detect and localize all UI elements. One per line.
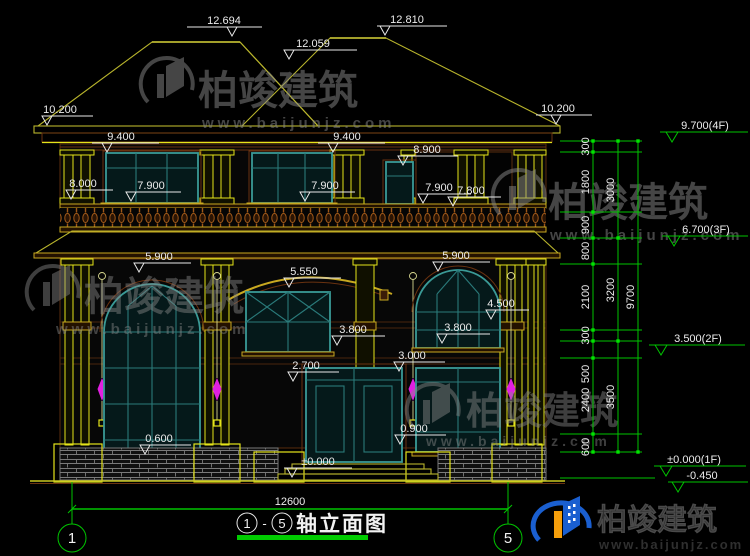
svg-text:±0.000(1F): ±0.000(1F) xyxy=(667,454,721,466)
svg-text:0.900: 0.900 xyxy=(400,423,428,435)
watermark-url: www.baijunjz.com xyxy=(55,321,249,338)
brand-logo: 柏竣建筑 www.baijunjz.com xyxy=(533,496,743,552)
watermark-brand: 柏竣建筑 xyxy=(548,181,708,225)
watermark-top: 柏竣建筑 www.baijunjz.com xyxy=(141,57,396,132)
svg-text:300: 300 xyxy=(580,326,592,344)
svg-text:5.900: 5.900 xyxy=(145,251,173,263)
svg-text:0.600: 0.600 xyxy=(145,433,173,445)
watermark-brand: 柏竣建筑 xyxy=(84,275,244,319)
svg-text:5.900: 5.900 xyxy=(442,250,470,262)
watermark-url: www.baijunjz.com xyxy=(201,115,395,132)
watermark-brand: 柏竣建筑 xyxy=(198,69,358,113)
axis-bubble-1: 1 xyxy=(58,524,86,552)
svg-text:1800: 1800 xyxy=(580,170,592,194)
brand-name: 柏竣建筑 xyxy=(597,503,717,537)
watermark-brand: 柏竣建筑 xyxy=(466,391,618,433)
cad-elevation-screenshot: 柏竣建筑 www.baijunjz.com 柏竣建筑 www.baijunjz.… xyxy=(0,0,750,556)
first-floor-window-center xyxy=(242,292,334,356)
svg-text:500: 500 xyxy=(580,365,592,383)
svg-text:800: 800 xyxy=(580,242,592,260)
svg-text:1: 1 xyxy=(68,530,76,547)
svg-text:5: 5 xyxy=(504,530,512,547)
floor-marker-2f: 3.500(2F) xyxy=(649,333,745,355)
title-axis-from: 1 xyxy=(243,516,250,531)
svg-text:6.700(3F): 6.700(3F) xyxy=(682,224,730,236)
chain-segment-labels: 300 1800 900 800 2100 300 500 2400 600 xyxy=(580,137,592,456)
svg-text:4.500: 4.500 xyxy=(487,298,515,310)
svg-text:9700: 9700 xyxy=(625,285,637,309)
overall-width-label: 12600 xyxy=(275,496,306,508)
skirt-roof xyxy=(34,231,560,258)
drawing-title: 1 - 5 轴立面图 xyxy=(237,512,388,540)
title-underline xyxy=(237,535,368,540)
svg-text:3.500(2F): 3.500(2F) xyxy=(674,333,722,345)
balcony-door xyxy=(383,160,416,205)
floor-marker-4f: 9.700(4F) xyxy=(660,120,748,142)
title-dash: - xyxy=(262,516,266,531)
svg-text:300: 300 xyxy=(580,137,592,155)
second-floor-window-left xyxy=(101,151,203,207)
svg-text:3200: 3200 xyxy=(605,278,617,302)
svg-text:8.900: 8.900 xyxy=(413,144,441,156)
svg-text:9.400: 9.400 xyxy=(333,131,361,143)
svg-text:2.700: 2.700 xyxy=(292,360,320,372)
elevation-drawing-canvas: 柏竣建筑 www.baijunjz.com 柏竣建筑 www.baijunjz.… xyxy=(0,0,750,556)
svg-text:600: 600 xyxy=(580,438,592,456)
svg-text:7.900: 7.900 xyxy=(137,180,165,192)
floor-elevation-markers: 9.700(4F) 6.700(3F) 3.500(2F) ±0.000(1F)… xyxy=(649,120,748,492)
title-text: 轴立面图 xyxy=(296,512,388,536)
svg-text:3500: 3500 xyxy=(605,385,617,409)
svg-text:7.900: 7.900 xyxy=(425,182,453,194)
svg-text:3000: 3000 xyxy=(605,178,617,202)
svg-text:5.550: 5.550 xyxy=(290,266,318,278)
floor-marker-minus-0450: -0.450 xyxy=(668,470,748,492)
svg-text:12.810: 12.810 xyxy=(390,14,424,26)
svg-text:9.700(4F): 9.700(4F) xyxy=(681,120,729,132)
svg-text:12.059: 12.059 xyxy=(296,38,330,50)
elevation-marker-12810: 12.810 xyxy=(377,14,447,35)
brand-logo-icon xyxy=(533,496,589,540)
title-axis-to: 5 xyxy=(278,516,285,531)
brand-url: www.baijunjz.com xyxy=(598,537,743,552)
svg-text:±0.000: ±0.000 xyxy=(301,456,335,468)
elevation-marker-10200-right: 10.200 xyxy=(536,103,592,124)
svg-text:7.900: 7.900 xyxy=(311,180,339,192)
elevation-marker-12694: 12.694 xyxy=(187,15,262,36)
elevation-marker-12059: 12.059 xyxy=(284,38,357,59)
svg-text:2400: 2400 xyxy=(580,388,592,412)
svg-text:8.000: 8.000 xyxy=(69,178,97,190)
svg-text:-0.450: -0.450 xyxy=(686,470,717,482)
balcony-balustrade xyxy=(60,204,546,232)
svg-text:3.000: 3.000 xyxy=(398,350,426,362)
elevation-marker-10200-left: 10.200 xyxy=(42,104,93,125)
svg-text:3.800: 3.800 xyxy=(444,322,472,334)
svg-text:10.200: 10.200 xyxy=(541,103,575,115)
svg-text:2100: 2100 xyxy=(580,285,592,309)
svg-text:10.200: 10.200 xyxy=(43,104,77,116)
stone-base xyxy=(30,444,565,484)
axis-bubble-5: 5 xyxy=(494,524,522,552)
svg-text:3.800: 3.800 xyxy=(339,324,367,336)
svg-text:12.694: 12.694 xyxy=(207,15,241,27)
svg-text:9.400: 9.400 xyxy=(107,131,135,143)
svg-text:7.800: 7.800 xyxy=(457,185,485,197)
entrance-door xyxy=(302,364,406,464)
svg-text:900: 900 xyxy=(580,216,592,234)
second-floor-window-center xyxy=(247,151,337,207)
